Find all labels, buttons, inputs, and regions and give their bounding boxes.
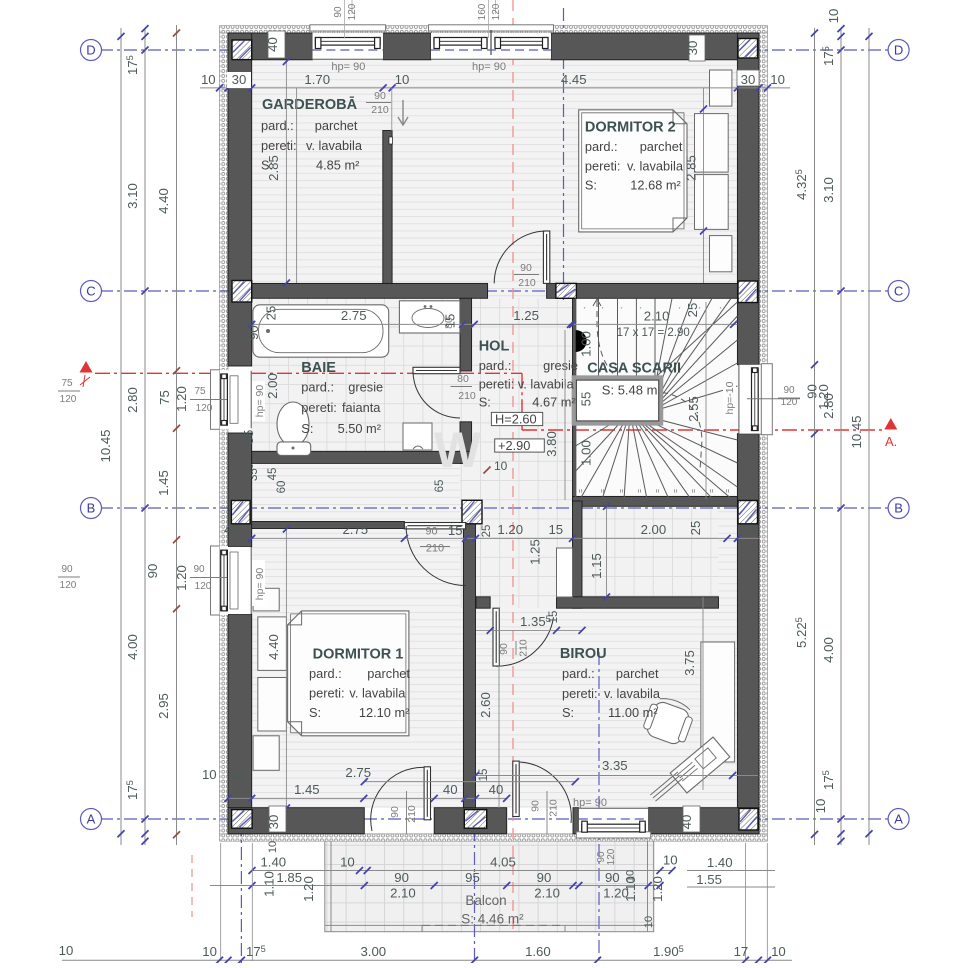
svg-text:90: 90: [61, 564, 73, 575]
svg-text:210: 210: [518, 639, 530, 657]
svg-text:40: 40: [679, 815, 694, 830]
svg-text:120: 120: [491, 3, 502, 20]
svg-text:55: 55: [579, 392, 594, 407]
svg-text:40: 40: [265, 37, 280, 52]
svg-text:2.00: 2.00: [641, 522, 667, 537]
svg-text:=: =: [619, 489, 626, 493]
svg-text:90: 90: [498, 643, 510, 655]
svg-text:2.75: 2.75: [345, 765, 371, 780]
svg-text:A.: A.: [885, 434, 897, 449]
svg-text:3.10: 3.10: [125, 183, 140, 209]
svg-text:10: 10: [59, 943, 74, 958]
svg-text:BAIE: BAIE: [301, 360, 336, 376]
svg-text:1.25: 1.25: [527, 539, 542, 565]
svg-text:25: 25: [481, 525, 493, 538]
svg-text:+2.90: +2.90: [498, 438, 530, 453]
svg-text:hp= 90: hp= 90: [472, 61, 506, 73]
svg-text:90: 90: [145, 564, 160, 579]
svg-text:4.05: 4.05: [490, 855, 516, 870]
svg-text:D: D: [86, 43, 95, 58]
svg-text:pereti:: pereti:: [585, 159, 621, 174]
svg-text:15: 15: [443, 314, 458, 329]
svg-text:25: 25: [688, 521, 703, 536]
svg-text:10: 10: [201, 72, 216, 87]
svg-text:2.75: 2.75: [341, 308, 367, 323]
svg-text:v. lavabila: v. lavabila: [306, 138, 363, 153]
svg-text:1.85: 1.85: [276, 870, 302, 885]
svg-text:120: 120: [606, 848, 617, 865]
svg-text:GARDEROBĀ: GARDEROBĀ: [262, 96, 358, 113]
svg-text:pard.:: pard.:: [309, 666, 342, 681]
svg-text:W: W: [434, 422, 482, 478]
svg-text:BIROU: BIROU: [560, 646, 607, 662]
svg-text:gresie: gresie: [543, 358, 578, 373]
svg-text:pereti: v. lavabila: pereti: v. lavabila: [479, 377, 575, 392]
svg-text:v. lavabila: v. lavabila: [349, 686, 406, 701]
svg-text:90: 90: [394, 870, 409, 885]
svg-text:H=2.60: H=2.60: [495, 411, 537, 426]
svg-text:160: 160: [477, 3, 488, 20]
svg-text:30: 30: [232, 72, 247, 87]
svg-text:2.10: 2.10: [534, 886, 560, 901]
svg-text:4.45: 4.45: [561, 72, 587, 87]
svg-text:1.45: 1.45: [294, 782, 320, 797]
svg-text:3.35: 3.35: [602, 758, 628, 773]
svg-text:3.10: 3.10: [821, 177, 836, 203]
svg-text:2.85: 2.85: [266, 155, 281, 181]
svg-text:65: 65: [434, 480, 446, 493]
svg-text:HOL: HOL: [479, 338, 510, 354]
svg-text:S:: S:: [309, 705, 321, 720]
svg-text:=: =: [709, 489, 716, 493]
svg-text:11.00 m²: 11.00 m²: [608, 705, 658, 720]
svg-text:2.95: 2.95: [156, 693, 171, 719]
svg-text:120: 120: [196, 403, 213, 414]
svg-text:4.40: 4.40: [266, 634, 281, 660]
svg-text:S: 4.46 m²: S: 4.46 m²: [461, 911, 524, 926]
svg-text:120: 120: [195, 581, 212, 592]
svg-text:pard.:: pard.:: [585, 139, 618, 154]
svg-text:95: 95: [465, 870, 480, 885]
svg-text:17: 17: [734, 944, 749, 959]
svg-text:=: =: [655, 489, 662, 493]
svg-text:=: =: [600, 489, 607, 493]
svg-text:3.80: 3.80: [544, 431, 559, 457]
svg-text:pereti:: pereti:: [562, 686, 598, 701]
svg-text:40: 40: [744, 522, 759, 537]
svg-text:3.00: 3.00: [360, 944, 386, 959]
svg-text:Balcon: Balcon: [465, 893, 506, 908]
svg-text:40: 40: [224, 522, 239, 537]
svg-text:hp=-10: hp=-10: [724, 381, 736, 414]
svg-text:S:: S:: [479, 395, 491, 410]
svg-text:1.00: 1.00: [579, 440, 594, 466]
svg-text:90: 90: [193, 564, 205, 575]
svg-text:4.67 m²: 4.67 m²: [532, 395, 576, 410]
svg-text:90: 90: [425, 526, 437, 538]
svg-text:1.20: 1.20: [174, 565, 189, 591]
svg-text:40: 40: [489, 782, 504, 797]
svg-text:2.55: 2.55: [686, 396, 701, 422]
svg-text:4.40: 4.40: [156, 188, 171, 214]
svg-text:75: 75: [61, 378, 73, 389]
svg-text:120: 120: [347, 3, 358, 20]
svg-text:2.10: 2.10: [644, 309, 670, 324]
svg-text:90: 90: [520, 262, 532, 274]
svg-text:hp= 90: hp= 90: [573, 797, 607, 809]
svg-text:210: 210: [548, 799, 560, 817]
svg-text:faianta: faianta: [342, 400, 381, 415]
svg-text:10: 10: [771, 944, 786, 959]
svg-text:120: 120: [60, 580, 77, 591]
svg-text:75: 75: [157, 390, 172, 405]
svg-text:15: 15: [478, 769, 490, 782]
svg-text:10: 10: [267, 841, 279, 853]
svg-text:10: 10: [770, 72, 785, 87]
svg-text:3.75: 3.75: [682, 650, 697, 676]
svg-text:pard.:: pard.:: [562, 666, 595, 681]
svg-text:hp= 90: hp= 90: [331, 61, 365, 73]
svg-text:10: 10: [813, 799, 828, 814]
svg-text:2.10: 2.10: [390, 886, 416, 901]
svg-text:1.20: 1.20: [497, 522, 523, 537]
svg-text:A: A: [87, 812, 96, 827]
svg-text:pard.:: pard.:: [301, 380, 334, 395]
svg-text:pereti:: pereti:: [309, 686, 345, 701]
svg-text:15: 15: [548, 522, 563, 537]
svg-text:15: 15: [548, 611, 560, 624]
svg-text:120: 120: [781, 397, 798, 408]
svg-text:30: 30: [685, 41, 700, 56]
svg-text:90: 90: [605, 870, 620, 885]
svg-text:S:: S:: [585, 178, 597, 193]
svg-text:1.25: 1.25: [513, 308, 539, 323]
svg-text:4.00: 4.00: [125, 634, 140, 660]
svg-text:pard.:: pard.:: [479, 358, 512, 373]
svg-text:90: 90: [374, 90, 386, 102]
svg-text:v. lavabila: v. lavabila: [604, 686, 661, 701]
svg-text:45: 45: [267, 468, 279, 481]
svg-text:90: 90: [529, 800, 541, 812]
svg-text:1.20: 1.20: [816, 384, 831, 410]
svg-text:2.00: 2.00: [265, 373, 280, 399]
svg-text:1.45: 1.45: [156, 470, 171, 496]
svg-text:75: 75: [194, 386, 206, 397]
svg-text:C: C: [894, 284, 903, 299]
svg-text:=: =: [578, 489, 585, 493]
svg-text:10: 10: [663, 853, 678, 868]
svg-text:25: 25: [264, 306, 279, 321]
svg-text:DORMITOR 2: DORMITOR 2: [585, 120, 676, 136]
svg-text:S:: S:: [562, 705, 574, 720]
svg-text:90: 90: [333, 6, 344, 18]
svg-text:1.20: 1.20: [301, 876, 316, 902]
svg-text:v. lavabila: v. lavabila: [627, 159, 684, 174]
svg-text:2.80: 2.80: [125, 387, 140, 413]
svg-text:40: 40: [443, 782, 458, 797]
svg-text:210: 210: [518, 277, 536, 289]
svg-text:1.15: 1.15: [589, 553, 604, 579]
svg-text:pereti:: pereti:: [261, 138, 297, 153]
svg-text:210: 210: [371, 104, 389, 116]
svg-text:60: 60: [276, 481, 288, 494]
svg-text:=: =: [691, 489, 698, 493]
svg-text:=: =: [637, 489, 644, 493]
svg-text:DORMITOR 1: DORMITOR 1: [313, 647, 404, 663]
svg-text:2.60: 2.60: [478, 692, 493, 718]
svg-text:10: 10: [826, 9, 841, 24]
svg-text:1.20: 1.20: [174, 386, 189, 412]
svg-text:C: C: [86, 284, 95, 299]
svg-text:10: 10: [202, 944, 217, 959]
svg-text:pereti:: pereti:: [301, 400, 337, 415]
svg-text:25: 25: [685, 303, 700, 318]
svg-text:parchet: parchet: [367, 666, 410, 681]
svg-text:D: D: [894, 43, 903, 58]
svg-text:CASA SCARII: CASA SCARII: [587, 360, 681, 376]
svg-text:15: 15: [448, 523, 463, 538]
svg-text:90: 90: [389, 806, 401, 818]
svg-text:2.75: 2.75: [342, 522, 368, 537]
svg-text:B: B: [87, 501, 96, 516]
svg-text:pard.:: pard.:: [261, 118, 294, 133]
svg-text:1.40: 1.40: [707, 855, 733, 870]
svg-text:10.45: 10.45: [98, 429, 113, 462]
svg-text:S:: S:: [301, 421, 313, 436]
svg-text:10: 10: [494, 459, 508, 473]
svg-text:35: 35: [241, 430, 256, 445]
svg-text:12.10 m²: 12.10 m²: [359, 705, 410, 720]
svg-text:A: A: [894, 812, 903, 827]
svg-text:2.85: 2.85: [683, 155, 698, 181]
svg-text:1.40: 1.40: [260, 855, 286, 870]
svg-text:5.50 m²: 5.50 m²: [338, 421, 382, 436]
svg-text:10: 10: [625, 870, 637, 882]
svg-text:210: 210: [426, 543, 444, 555]
svg-text:90: 90: [783, 385, 795, 396]
svg-text:210: 210: [406, 805, 418, 823]
svg-text:30: 30: [266, 815, 281, 830]
svg-text:1.10: 1.10: [261, 871, 276, 897]
svg-text:parchet: parchet: [640, 139, 683, 154]
svg-text:10: 10: [643, 916, 655, 928]
svg-text:parchet: parchet: [315, 118, 358, 133]
svg-text:12.68 m²: 12.68 m²: [630, 178, 681, 193]
svg-text:=: =: [725, 489, 732, 493]
svg-text:parchet: parchet: [616, 666, 659, 681]
svg-text:1.60: 1.60: [525, 944, 551, 959]
svg-text:1.20: 1.20: [650, 876, 665, 902]
svg-text:hp= 90: hp= 90: [254, 568, 266, 601]
svg-text:1.00: 1.00: [579, 331, 594, 357]
svg-text:30: 30: [741, 72, 756, 87]
svg-text:1.55: 1.55: [696, 872, 722, 887]
svg-text:10: 10: [395, 72, 410, 87]
svg-text:80: 80: [457, 373, 469, 385]
svg-text:120: 120: [60, 394, 77, 405]
svg-text:210: 210: [458, 390, 476, 402]
svg-text:gresie: gresie: [348, 380, 383, 395]
svg-text:30: 30: [230, 767, 245, 782]
svg-text:10: 10: [202, 767, 217, 782]
svg-text:1.70: 1.70: [304, 72, 330, 87]
svg-text:=: =: [673, 489, 680, 493]
svg-text:4.85 m²: 4.85 m²: [316, 158, 360, 173]
svg-text:B: B: [894, 501, 903, 516]
svg-text:S: 5.48 m: S: 5.48 m: [602, 383, 658, 398]
svg-text:90: 90: [537, 870, 552, 885]
svg-text:17 x 17 = 2.90: 17 x 17 = 2.90: [617, 327, 690, 339]
svg-text:10: 10: [340, 855, 355, 870]
svg-text:10.45: 10.45: [849, 415, 864, 448]
svg-text:4.00: 4.00: [821, 637, 836, 663]
